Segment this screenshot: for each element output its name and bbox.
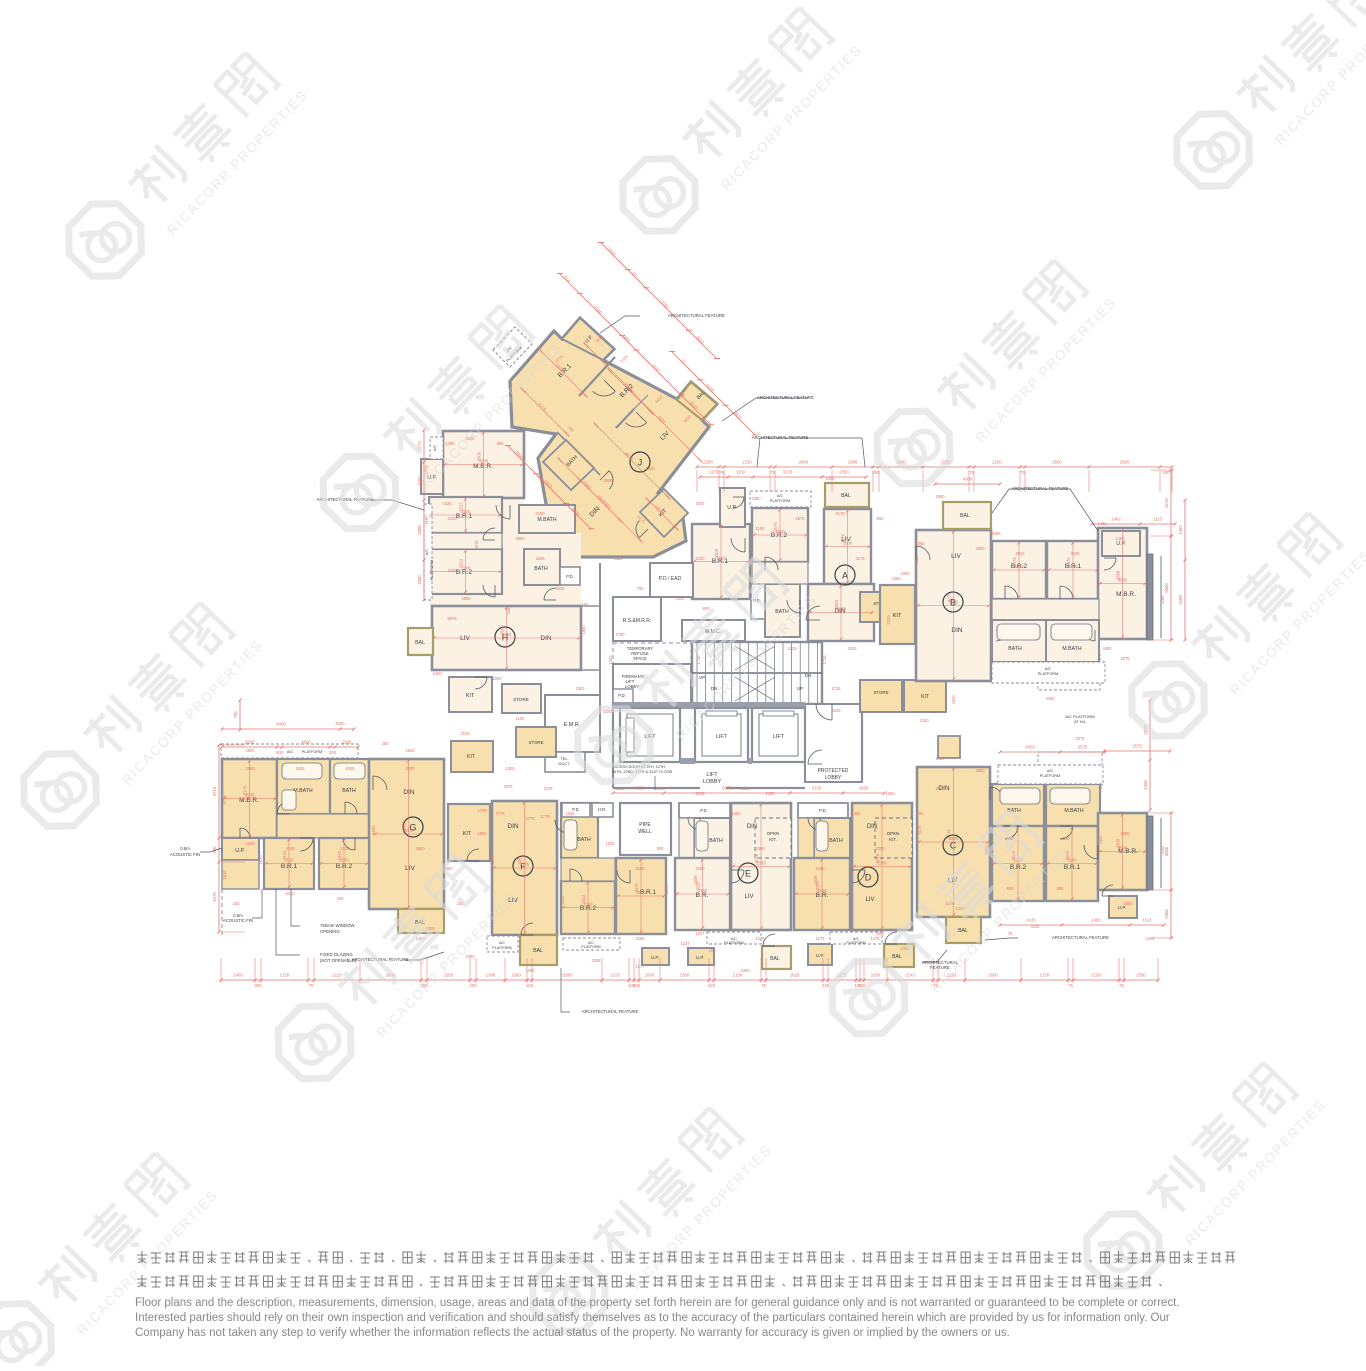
svg-text:1275: 1275 [815, 936, 825, 941]
svg-text:3300: 3300 [417, 525, 422, 535]
svg-text:2156: 2156 [812, 786, 822, 791]
svg-text:P.D / EAD: P.D / EAD [659, 576, 682, 582]
svg-text:BATH: BATH [577, 837, 591, 843]
svg-text:2500: 2500 [245, 766, 255, 771]
svg-text:1150: 1150 [736, 470, 746, 475]
svg-text:75: 75 [719, 470, 724, 475]
svg-text:9400: 9400 [276, 722, 286, 727]
svg-text:STORE: STORE [528, 740, 543, 745]
svg-text:2000: 2000 [245, 841, 255, 846]
svg-text:2575: 2575 [1012, 557, 1017, 567]
svg-text:6410: 6410 [285, 891, 295, 896]
svg-text:BATH: BATH [1008, 646, 1022, 652]
svg-text:ARCHITECTURAL FEATURE: ARCHITECTURAL FEATURE [668, 313, 725, 318]
svg-text:LOBBY: LOBBY [703, 779, 722, 785]
svg-text:1000: 1000 [432, 671, 442, 676]
svg-text:2150: 2150 [280, 973, 290, 978]
svg-text:ARCHITECTURAL FEATURE: ARCHITECTURAL FEATURE [752, 435, 809, 440]
svg-text:1625: 1625 [295, 766, 305, 771]
svg-text:2075: 2075 [1075, 736, 1085, 741]
svg-text:75: 75 [1020, 470, 1025, 475]
svg-text:2800: 2800 [935, 786, 945, 791]
svg-text:3288: 3288 [1116, 570, 1121, 580]
svg-text:DUCT: DUCT [558, 761, 570, 766]
svg-text:LIV: LIV [744, 894, 753, 900]
svg-text:1510: 1510 [258, 855, 263, 865]
svg-text:1450: 1450 [851, 811, 861, 816]
svg-text:Interested parties should rely: Interested parties should rely on their … [135, 1312, 1170, 1324]
svg-text:2500: 2500 [245, 740, 255, 745]
svg-text:3000: 3000 [405, 766, 415, 771]
svg-text:LOBBY: LOBBY [625, 684, 639, 689]
svg-text:KIT: KIT [921, 694, 929, 700]
svg-text:1200: 1200 [492, 676, 502, 681]
svg-text:FIXED GLAZING: FIXED GLAZING [320, 952, 353, 957]
svg-text:2150: 2150 [742, 460, 752, 465]
svg-text:PLATFORM: PLATFORM [302, 750, 322, 754]
svg-text:4600: 4600 [301, 740, 311, 745]
svg-text:200: 200 [1162, 470, 1170, 475]
svg-text:OPENING: OPENING [320, 929, 340, 934]
svg-text:0.5m: 0.5m [180, 846, 190, 851]
svg-text:750: 750 [233, 711, 238, 719]
svg-text:300: 300 [254, 983, 262, 988]
svg-text:2850: 2850 [461, 596, 471, 601]
svg-text:PLATFORM: PLATFORM [581, 945, 600, 949]
svg-text:2625: 2625 [790, 973, 800, 978]
svg-text:2100: 2100 [695, 556, 705, 561]
svg-text:900: 900 [497, 441, 505, 446]
svg-text:1850: 1850 [477, 831, 487, 836]
svg-text:3075: 3075 [634, 883, 639, 893]
svg-text:2312: 2312 [459, 558, 464, 568]
svg-text:P.D.: P.D. [700, 808, 708, 813]
svg-text:2600: 2600 [988, 973, 998, 978]
svg-text:2850: 2850 [515, 536, 525, 541]
svg-text:2150: 2150 [695, 866, 705, 871]
svg-text:75: 75 [761, 983, 766, 988]
svg-text:4225: 4225 [831, 708, 841, 713]
svg-text:A/C: A/C [287, 750, 294, 754]
svg-text:U.P.: U.P. [1116, 541, 1125, 547]
svg-text:2312: 2312 [581, 894, 586, 904]
svg-text:150: 150 [233, 901, 241, 906]
svg-text:1050: 1050 [871, 973, 881, 978]
svg-text:1300: 1300 [505, 766, 515, 771]
svg-text:PIPE: PIPE [639, 822, 651, 828]
svg-text:2312: 2312 [459, 502, 464, 512]
svg-text:2025: 2025 [695, 791, 705, 796]
svg-text:WELL: WELL [638, 829, 652, 835]
svg-text:ARCHITECTURAL FEATURE: ARCHITECTURAL FEATURE [1012, 486, 1069, 491]
svg-text:1775: 1775 [495, 811, 505, 816]
svg-text:1277: 1277 [635, 964, 645, 969]
svg-text:1150: 1150 [756, 526, 766, 531]
svg-text:3000: 3000 [415, 846, 425, 851]
svg-text:2500: 2500 [1164, 909, 1169, 919]
svg-text:1000: 1000 [825, 476, 835, 481]
svg-text:KIT: KIT [467, 754, 475, 760]
svg-text:DIN: DIN [951, 627, 963, 634]
svg-text:1825: 1825 [535, 556, 545, 561]
svg-text:75: 75 [1068, 983, 1073, 988]
svg-text:75: 75 [969, 470, 974, 475]
svg-text:B.R.1: B.R.1 [456, 513, 473, 520]
svg-text:4225: 4225 [787, 646, 797, 651]
svg-text:ARCHITECTURAL FEATURE: ARCHITECTURAL FEATURE [757, 395, 814, 400]
svg-text:PLATFORM: PLATFORM [724, 941, 743, 945]
svg-text:2150: 2150 [1040, 973, 1050, 978]
svg-text:1200: 1200 [919, 718, 929, 723]
svg-text:1550: 1550 [506, 605, 511, 615]
svg-text:4450: 4450 [1025, 745, 1035, 750]
svg-text:4325: 4325 [847, 646, 857, 651]
svg-text:1237: 1237 [695, 931, 705, 936]
svg-text:1650: 1650 [885, 791, 895, 796]
svg-text:2025: 2025 [615, 786, 625, 791]
svg-text:9000: 9000 [1164, 583, 1169, 593]
svg-text:2500: 2500 [603, 478, 613, 483]
svg-text:1725: 1725 [822, 655, 827, 665]
svg-text:1075: 1075 [543, 786, 553, 791]
svg-text:2150: 2150 [535, 511, 545, 516]
svg-text:2380: 2380 [751, 496, 761, 501]
svg-text:3300: 3300 [477, 451, 482, 461]
svg-text:P.D.: P.D. [618, 693, 626, 698]
svg-text:1625: 1625 [442, 501, 452, 506]
svg-text:3288: 3288 [1178, 595, 1183, 605]
svg-text:1000: 1000 [511, 973, 521, 978]
svg-text:4300: 4300 [963, 477, 973, 482]
svg-text:STORE: STORE [513, 697, 529, 702]
svg-text:1462: 1462 [1115, 536, 1125, 541]
svg-text:Company has not taken any step: Company has not taken any step to verify… [135, 1327, 1010, 1339]
svg-text:2500: 2500 [342, 740, 352, 745]
svg-text:KIT.: KIT. [769, 837, 777, 842]
svg-text:4450: 4450 [1143, 780, 1148, 790]
svg-text:2150: 2150 [733, 973, 743, 978]
svg-text:2075: 2075 [1120, 656, 1130, 661]
svg-text:3075: 3075 [503, 784, 513, 789]
svg-text:3300: 3300 [714, 548, 719, 558]
svg-text:1025: 1025 [605, 841, 615, 846]
svg-text:2300: 2300 [755, 846, 765, 851]
svg-text:100: 100 [709, 948, 717, 953]
svg-text:PLATFORM: PLATFORM [492, 946, 511, 950]
svg-text:2575: 2575 [1066, 557, 1071, 567]
svg-text:2300: 2300 [740, 968, 750, 973]
svg-text:DN: DN [805, 673, 812, 678]
svg-text:M.BATH: M.BATH [1064, 808, 1083, 814]
svg-text:DIN: DIN [507, 823, 519, 830]
svg-text:150: 150 [526, 983, 534, 988]
svg-text:1725: 1725 [696, 655, 701, 665]
svg-text:2155: 2155 [740, 786, 750, 791]
svg-text:P.D.: P.D. [819, 808, 827, 813]
svg-text:750mm WINDOW: 750mm WINDOW [320, 923, 355, 928]
svg-text:LIFT: LIFT [773, 734, 785, 740]
svg-text:R.S.&M.R.R.: R.S.&M.R.R. [623, 618, 652, 624]
svg-text:4450: 4450 [1102, 646, 1112, 651]
svg-text:100: 100 [633, 983, 641, 988]
svg-text:3175: 3175 [855, 556, 865, 561]
svg-text:BAL: BAL [958, 928, 968, 934]
svg-text:9400: 9400 [335, 721, 345, 726]
svg-text:3175: 3175 [243, 785, 248, 795]
svg-text:3300: 3300 [1098, 835, 1103, 845]
svg-text:1197: 1197 [424, 515, 429, 525]
svg-text:1000: 1000 [525, 968, 535, 973]
svg-text:1950: 1950 [581, 625, 586, 635]
svg-text:5875: 5875 [518, 855, 523, 865]
svg-text:300: 300 [276, 750, 284, 755]
svg-text:2500: 2500 [1120, 831, 1130, 836]
svg-text:3289: 3289 [991, 531, 1001, 536]
svg-text:PLATFORM: PLATFORM [1040, 774, 1060, 778]
svg-text:3300: 3300 [1116, 838, 1121, 848]
svg-text:LIFT: LIFT [716, 734, 728, 740]
svg-text:DIN: DIN [540, 635, 552, 642]
svg-text:LIV: LIV [405, 865, 415, 872]
svg-text:M.B.R.: M.B.R. [1116, 591, 1136, 598]
svg-text:1113: 1113 [1143, 918, 1153, 923]
svg-text:6175: 6175 [947, 829, 952, 839]
svg-text:P.D.: P.D. [566, 574, 574, 579]
svg-text:1510: 1510 [222, 870, 227, 880]
svg-text:DIN: DIN [867, 824, 877, 830]
svg-text:OPEN: OPEN [887, 831, 899, 836]
svg-text:2155: 2155 [765, 791, 775, 796]
svg-text:2312: 2312 [282, 850, 287, 860]
svg-text:LIV: LIV [951, 553, 961, 560]
svg-text:3005: 3005 [693, 875, 698, 885]
svg-text:1650: 1650 [859, 786, 869, 791]
svg-text:BATH: BATH [534, 566, 548, 572]
svg-text:A: A [842, 571, 848, 581]
svg-text:ACOUSTIC FIN: ACOUSTIC FIN [223, 918, 253, 923]
svg-text:1237: 1237 [611, 973, 621, 978]
svg-text:1113: 1113 [1153, 517, 1163, 522]
svg-text:PLATFORM: PLATFORM [846, 941, 865, 945]
svg-text:M.B.R.: M.B.R. [239, 797, 259, 804]
svg-text:1462: 1462 [1111, 517, 1121, 522]
svg-text:3300: 3300 [1160, 845, 1165, 855]
svg-text:1625: 1625 [555, 586, 565, 591]
svg-text:1988: 1988 [848, 460, 858, 465]
svg-text:2300: 2300 [875, 846, 885, 851]
svg-text:225: 225 [822, 983, 830, 988]
svg-text:1275: 1275 [755, 936, 765, 941]
svg-text:2575: 2575 [1132, 744, 1142, 749]
svg-text:2100: 2100 [447, 568, 457, 573]
svg-text:2300: 2300 [703, 460, 713, 465]
svg-text:KIT: KIT [463, 831, 472, 837]
svg-text:2150: 2150 [815, 866, 825, 871]
svg-text:2012: 2012 [1015, 551, 1025, 556]
svg-text:2750: 2750 [615, 632, 625, 637]
svg-text:2075: 2075 [655, 786, 665, 791]
svg-text:ARCHITECTURAL FEATURE: ARCHITECTURAL FEATURE [582, 1009, 639, 1014]
svg-text:H.R.: H.R. [598, 807, 606, 812]
svg-text:4125: 4125 [1026, 918, 1036, 923]
svg-text:5475: 5475 [212, 892, 217, 902]
svg-text:100: 100 [917, 811, 925, 816]
svg-text:PLATFORM: PLATFORM [770, 499, 790, 503]
svg-text:3288: 3288 [635, 936, 645, 941]
svg-text:1500: 1500 [951, 695, 956, 705]
svg-text:M.BATH: M.BATH [537, 517, 556, 523]
svg-text:1400: 1400 [233, 973, 243, 978]
svg-text:900: 900 [703, 606, 711, 611]
svg-text:BAL: BAL [841, 493, 851, 499]
svg-text:1400: 1400 [935, 756, 945, 761]
svg-text:A/C: A/C [433, 445, 437, 451]
svg-text:2100: 2100 [460, 731, 470, 736]
svg-text:2500: 2500 [1123, 901, 1133, 906]
svg-text:1200: 1200 [608, 655, 613, 665]
svg-text:2300: 2300 [675, 596, 685, 601]
svg-text:75: 75 [1119, 983, 1124, 988]
svg-text:U.P.: U.P. [235, 848, 244, 854]
svg-text:2500: 2500 [405, 748, 415, 753]
svg-text:1775: 1775 [540, 814, 550, 819]
svg-text:1462: 1462 [1178, 525, 1183, 535]
svg-text:3715: 3715 [222, 795, 227, 805]
svg-text:5218: 5218 [1164, 498, 1169, 508]
svg-text:(NOT OPENABLE): (NOT OPENABLE) [320, 958, 357, 963]
svg-text:6175: 6175 [947, 592, 952, 602]
svg-text:1825: 1825 [345, 766, 355, 771]
svg-text:KIT.: KIT. [889, 837, 897, 842]
svg-text:2025: 2025 [634, 786, 644, 791]
svg-text:BAL: BAL [960, 513, 970, 519]
svg-text:2575: 2575 [1078, 745, 1088, 750]
svg-text:1700: 1700 [477, 808, 487, 813]
svg-text:2150: 2150 [992, 460, 1002, 465]
svg-text:2500: 2500 [1052, 460, 1062, 465]
svg-text:2150: 2150 [1091, 973, 1101, 978]
svg-text:U.P.: U.P. [816, 953, 824, 958]
svg-text:2000: 2000 [935, 494, 945, 499]
svg-text:3005: 3005 [813, 875, 818, 885]
svg-text:4125: 4125 [1030, 924, 1040, 929]
svg-text:3175: 3175 [841, 533, 846, 543]
svg-text:900: 900 [657, 846, 665, 851]
svg-text:U.P.: U.P. [696, 955, 704, 960]
svg-text:2150: 2150 [1060, 836, 1070, 841]
svg-text:4450: 4450 [1045, 696, 1055, 701]
svg-text:LOBBY: LOBBY [825, 775, 842, 781]
svg-text:2500: 2500 [1136, 973, 1146, 978]
svg-text:E: E [745, 869, 751, 879]
svg-text:A/C: A/C [1045, 667, 1052, 671]
svg-text:1725: 1725 [831, 686, 841, 691]
svg-text:1308: 1308 [486, 973, 496, 978]
svg-text:2500: 2500 [1120, 460, 1130, 465]
svg-text:3288: 3288 [1160, 595, 1165, 605]
svg-text:75: 75 [309, 983, 314, 988]
svg-text:1275: 1275 [709, 470, 719, 475]
svg-text:OPEN: OPEN [767, 831, 779, 836]
svg-text:2900: 2900 [245, 748, 255, 753]
svg-text:2900: 2900 [500, 625, 505, 635]
svg-text:A/C: A/C [1047, 769, 1054, 773]
svg-text:PROTECTED: PROTECTED [818, 768, 849, 774]
svg-text:1675: 1675 [695, 501, 705, 506]
svg-text:1050: 1050 [900, 571, 910, 576]
svg-text:5218: 5218 [754, 853, 759, 863]
svg-text:150: 150 [582, 602, 590, 607]
svg-text:2300: 2300 [645, 466, 655, 471]
svg-text:M.B.R.: M.B.R. [473, 463, 493, 470]
svg-text:6175: 6175 [917, 825, 922, 835]
svg-text:5875: 5875 [490, 855, 495, 865]
svg-text:1237: 1237 [680, 941, 690, 946]
svg-text:2800: 2800 [975, 768, 985, 773]
svg-text:6600: 6600 [371, 825, 376, 835]
svg-text:DIN: DIN [403, 789, 415, 796]
svg-text:1000: 1000 [417, 575, 422, 585]
svg-text:1462: 1462 [1097, 521, 1107, 526]
svg-text:Floor plans and the descriptio: Floor plans and the description, measure… [135, 1297, 1180, 1309]
svg-text:UP: UP [797, 686, 803, 691]
svg-text:850: 850 [1007, 886, 1015, 891]
svg-text:UP: UP [699, 675, 705, 680]
svg-text:3288: 3288 [562, 973, 572, 978]
svg-text:2312: 2312 [560, 895, 565, 905]
svg-text:5875: 5875 [447, 616, 457, 621]
svg-text:1000: 1000 [645, 973, 655, 978]
svg-text:2100: 2100 [285, 846, 295, 851]
svg-text:BAL: BAL [415, 640, 425, 646]
svg-text:850: 850 [1057, 886, 1065, 891]
svg-text:1503: 1503 [575, 686, 585, 691]
svg-text:LIV: LIV [460, 635, 470, 642]
svg-text:5513: 5513 [474, 540, 479, 550]
svg-text:4325: 4325 [914, 555, 919, 565]
svg-text:DIN: DIN [747, 824, 757, 830]
svg-text:3075: 3075 [664, 885, 669, 895]
svg-text:BAL: BAL [533, 948, 543, 954]
svg-text:2775: 2775 [525, 816, 535, 821]
svg-text:BAL: BAL [892, 954, 902, 960]
svg-text:2300: 2300 [680, 973, 690, 978]
svg-text:KIT: KIT [893, 613, 902, 619]
svg-text:A/C: A/C [777, 494, 784, 498]
svg-text:AT H/L: AT H/L [1074, 719, 1087, 724]
svg-text:U.P.: U.P. [651, 955, 659, 960]
svg-text:200: 200 [337, 896, 345, 901]
svg-text:6600: 6600 [402, 821, 407, 831]
svg-text:3715: 3715 [212, 786, 217, 796]
svg-text:1482: 1482 [1091, 918, 1101, 923]
svg-text:900: 900 [877, 516, 885, 521]
svg-text:ARCHITECTURAL FEATURE: ARCHITECTURAL FEATURE [1052, 935, 1109, 940]
svg-text:2575: 2575 [795, 516, 805, 521]
svg-text:2900: 2900 [834, 599, 839, 609]
svg-text:KIT: KIT [466, 693, 475, 699]
svg-text:5075: 5075 [722, 786, 732, 791]
svg-text:75: 75 [770, 470, 775, 475]
svg-text:300: 300 [329, 750, 337, 755]
svg-text:2000: 2000 [839, 470, 849, 475]
svg-text:BAL: BAL [770, 956, 780, 962]
svg-text:2100: 2100 [447, 516, 457, 521]
svg-text:1113: 1113 [1146, 936, 1155, 941]
svg-text:A/C: A/C [425, 549, 429, 556]
svg-text:STORE: STORE [873, 690, 888, 695]
svg-text:BATH: BATH [709, 838, 723, 844]
